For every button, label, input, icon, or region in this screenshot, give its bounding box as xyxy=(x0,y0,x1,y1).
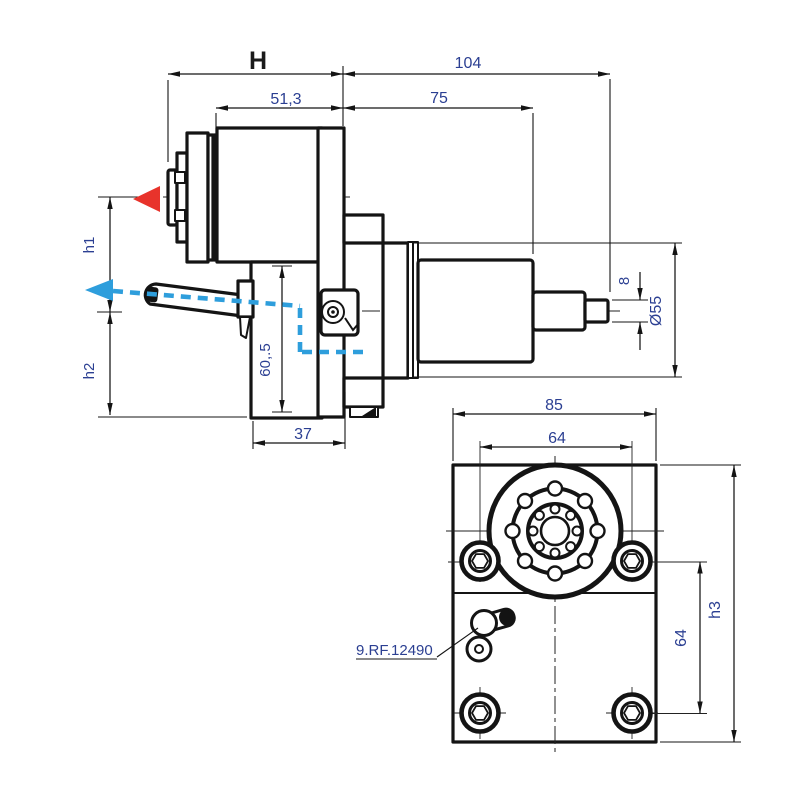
dim-104-label: 104 xyxy=(455,55,482,72)
dim-h2: h2 xyxy=(81,312,247,417)
red-arrow-icon xyxy=(133,186,160,212)
dim-h3-label: h3 xyxy=(707,601,724,619)
shank-cylinder xyxy=(418,260,533,362)
blue-arrow-icon xyxy=(85,279,113,301)
shank-collar xyxy=(383,243,408,378)
dim-h1-label: h1 xyxy=(81,237,98,254)
dim-8-label: 8 xyxy=(616,277,633,285)
dim-64-right-label: 64 xyxy=(673,629,690,647)
spindle-flange-face xyxy=(489,465,621,597)
screw-top-right xyxy=(614,543,651,580)
clamp-block xyxy=(321,290,359,335)
dim-64-right: 64 xyxy=(673,562,700,714)
dim-37-label: 37 xyxy=(294,426,312,443)
spindle-nose-stack xyxy=(168,133,219,262)
lower-lug xyxy=(344,378,383,407)
shaft-step xyxy=(533,292,585,330)
drawing-svg: H 104 51,3 75 h1 h2 xyxy=(0,0,800,800)
side-view: H 104 51,3 75 h1 h2 xyxy=(81,47,682,449)
dim-64-top-label: 64 xyxy=(548,430,566,447)
dim-h2-label: h2 xyxy=(81,363,98,380)
shaft-tip xyxy=(585,300,608,322)
screw-top-left xyxy=(462,543,499,580)
gear-housing xyxy=(217,128,322,262)
dim-51-3-label: 51,3 xyxy=(270,91,301,108)
tool-post-column xyxy=(251,262,322,418)
dim-60-5-label: 60,.5 xyxy=(257,343,274,376)
front-view: 9.RF.12490 85 64 64 h3 xyxy=(356,397,741,752)
technical-drawing-canvas: H 104 51,3 75 h1 h2 xyxy=(0,0,800,800)
dim-85-label: 85 xyxy=(545,397,563,414)
dim-75-label: 75 xyxy=(430,90,448,107)
tool-lever xyxy=(145,281,253,338)
dim-64-top: 64 xyxy=(480,430,632,447)
mounting-flange-plate xyxy=(318,128,344,417)
part-ref-label: 9.RF.12490 xyxy=(356,642,433,659)
dim-dia55-label: Ø55 xyxy=(648,296,665,326)
lever-tab xyxy=(240,317,250,338)
upper-lug xyxy=(344,215,383,243)
dim-85: 85 xyxy=(453,397,656,461)
dim-H-label: H xyxy=(249,47,267,75)
